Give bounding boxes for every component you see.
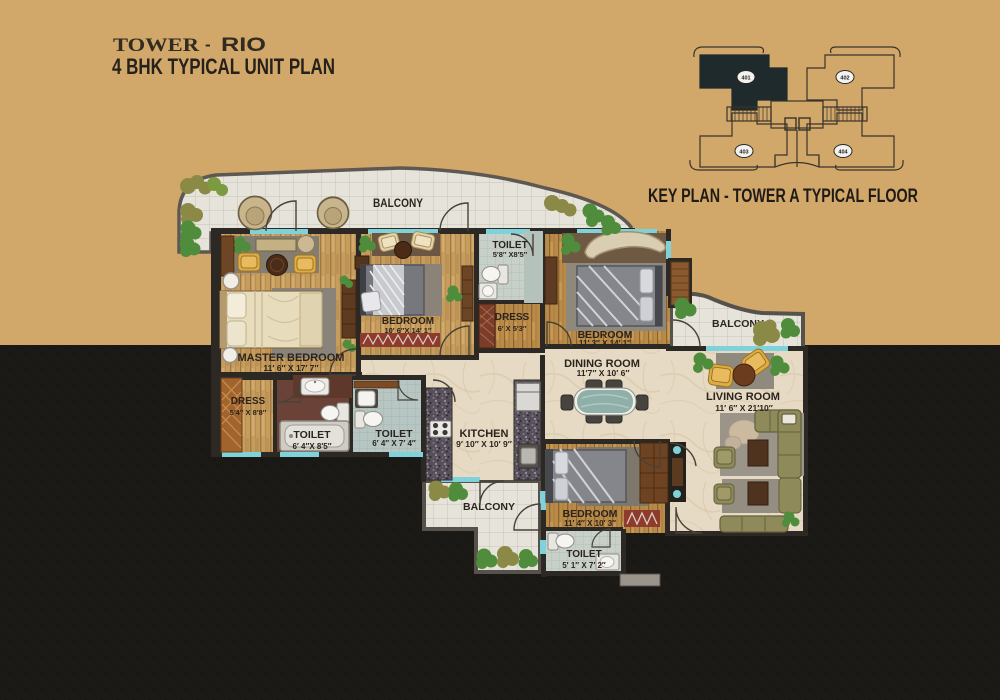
svg-text:TOILET: TOILET	[566, 549, 601, 560]
svg-text:403: 403	[739, 150, 748, 156]
svg-text:11′ 3″ X 14′ 1″: 11′ 3″ X 14′ 1″	[579, 339, 631, 348]
svg-text:5′4″ X 8′8″: 5′4″ X 8′8″	[230, 408, 267, 417]
svg-text:TOWER: TOWER	[113, 35, 199, 56]
svg-text:5′ 1″ X 7′ 2″: 5′ 1″ X 7′ 2″	[562, 561, 606, 570]
svg-text:BALCONY: BALCONY	[373, 198, 423, 210]
svg-text:KEY PLAN - TOWER A TYPICAL FLO: KEY PLAN - TOWER A TYPICAL FLOOR	[648, 186, 918, 207]
svg-text:404: 404	[838, 150, 848, 156]
svg-text:LIVING ROOM: LIVING ROOM	[706, 391, 780, 403]
svg-text:11′ 6″ X 21′10″: 11′ 6″ X 21′10″	[715, 403, 773, 413]
svg-text:6′ 4″ X 7′ 4″: 6′ 4″ X 7′ 4″	[372, 439, 416, 448]
svg-text:TOILET: TOILET	[293, 429, 331, 441]
svg-text:4 BHK TYPICAL UNIT PLAN: 4 BHK TYPICAL UNIT PLAN	[112, 54, 335, 79]
svg-text:RIO: RIO	[221, 35, 266, 56]
svg-text:11′7″ X 10′ 6″: 11′7″ X 10′ 6″	[577, 368, 630, 378]
svg-text:10′ 6″X 14′ 1″: 10′ 6″X 14′ 1″	[384, 326, 431, 335]
svg-text:6′ 4″X 8′5″: 6′ 4″X 8′5″	[292, 442, 331, 451]
svg-text:-: -	[205, 35, 211, 54]
svg-text:11′ 4″ X 10′ 3″: 11′ 4″ X 10′ 3″	[564, 519, 616, 528]
svg-text:6′ X 5′3″: 6′ X 5′3″	[498, 324, 527, 333]
svg-text:DRESS: DRESS	[231, 396, 266, 407]
svg-text:401: 401	[741, 76, 750, 82]
svg-text:11′ 6″ X 17′ 7″: 11′ 6″ X 17′ 7″	[263, 363, 318, 373]
svg-text:BALCONY: BALCONY	[463, 501, 515, 513]
svg-text:5′8″ X8′5″: 5′8″ X8′5″	[493, 250, 528, 259]
svg-text:DRESS: DRESS	[495, 312, 530, 323]
svg-text:9′ 10″ X 10′ 9″: 9′ 10″ X 10′ 9″	[456, 439, 512, 449]
svg-text:402: 402	[840, 76, 849, 82]
